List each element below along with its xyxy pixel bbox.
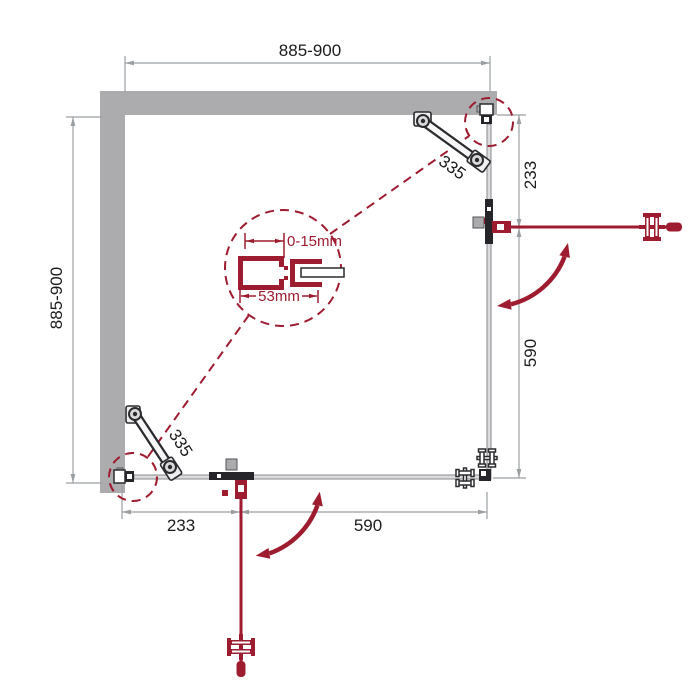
dimension-left-label: 885-900 <box>47 267 66 329</box>
bottom-glass-panel <box>134 475 491 479</box>
right-door-swing-arrow <box>497 243 570 310</box>
support-bar-bottom-left: 335 <box>126 406 196 481</box>
support-bar-top-right: 335 <box>414 112 491 184</box>
hinge-right-door <box>473 199 493 244</box>
dimension-top-label: 885-900 <box>279 41 341 60</box>
left-wall <box>100 91 125 493</box>
right-glass-panel <box>487 124 491 478</box>
dimension-bottom-left-label: 233 <box>167 516 195 535</box>
bottom-door-swing-arrow <box>256 492 323 559</box>
dimension-right-upper-label: 233 <box>521 161 540 189</box>
callout-line-top <box>330 136 469 234</box>
corner-joint-notch <box>481 471 486 476</box>
dimension-left: 885-900 <box>47 117 102 483</box>
bottom-door-open <box>227 480 255 677</box>
glass-panels <box>134 124 491 481</box>
detail-profile-drawing: 0-15mm 53mm <box>238 233 344 305</box>
support-bottom-length-label: 335 <box>165 426 196 460</box>
callout-line-bottom <box>147 315 249 458</box>
top-wall <box>100 91 497 115</box>
wall-profile-top-right <box>477 104 493 124</box>
handle-right-door-open <box>639 213 682 241</box>
dimension-right-lower-label: 590 <box>521 339 540 367</box>
handle-bottom-door-open <box>227 634 255 677</box>
detail-adjustment-label: 0-15mm <box>287 233 342 250</box>
detail-width-label: 53mm <box>258 288 300 305</box>
dimension-top: 885-900 <box>125 41 490 92</box>
wall-profile-bottom-left <box>114 468 134 483</box>
hinge-bottom-door <box>209 459 254 496</box>
shower-enclosure-installation-diagram: 885-900 885-900 233 590 233 590 <box>0 0 700 700</box>
callout-connectors <box>147 136 469 458</box>
dimension-bottom-right-label: 590 <box>354 516 382 535</box>
detail-glass-panel <box>301 268 344 277</box>
